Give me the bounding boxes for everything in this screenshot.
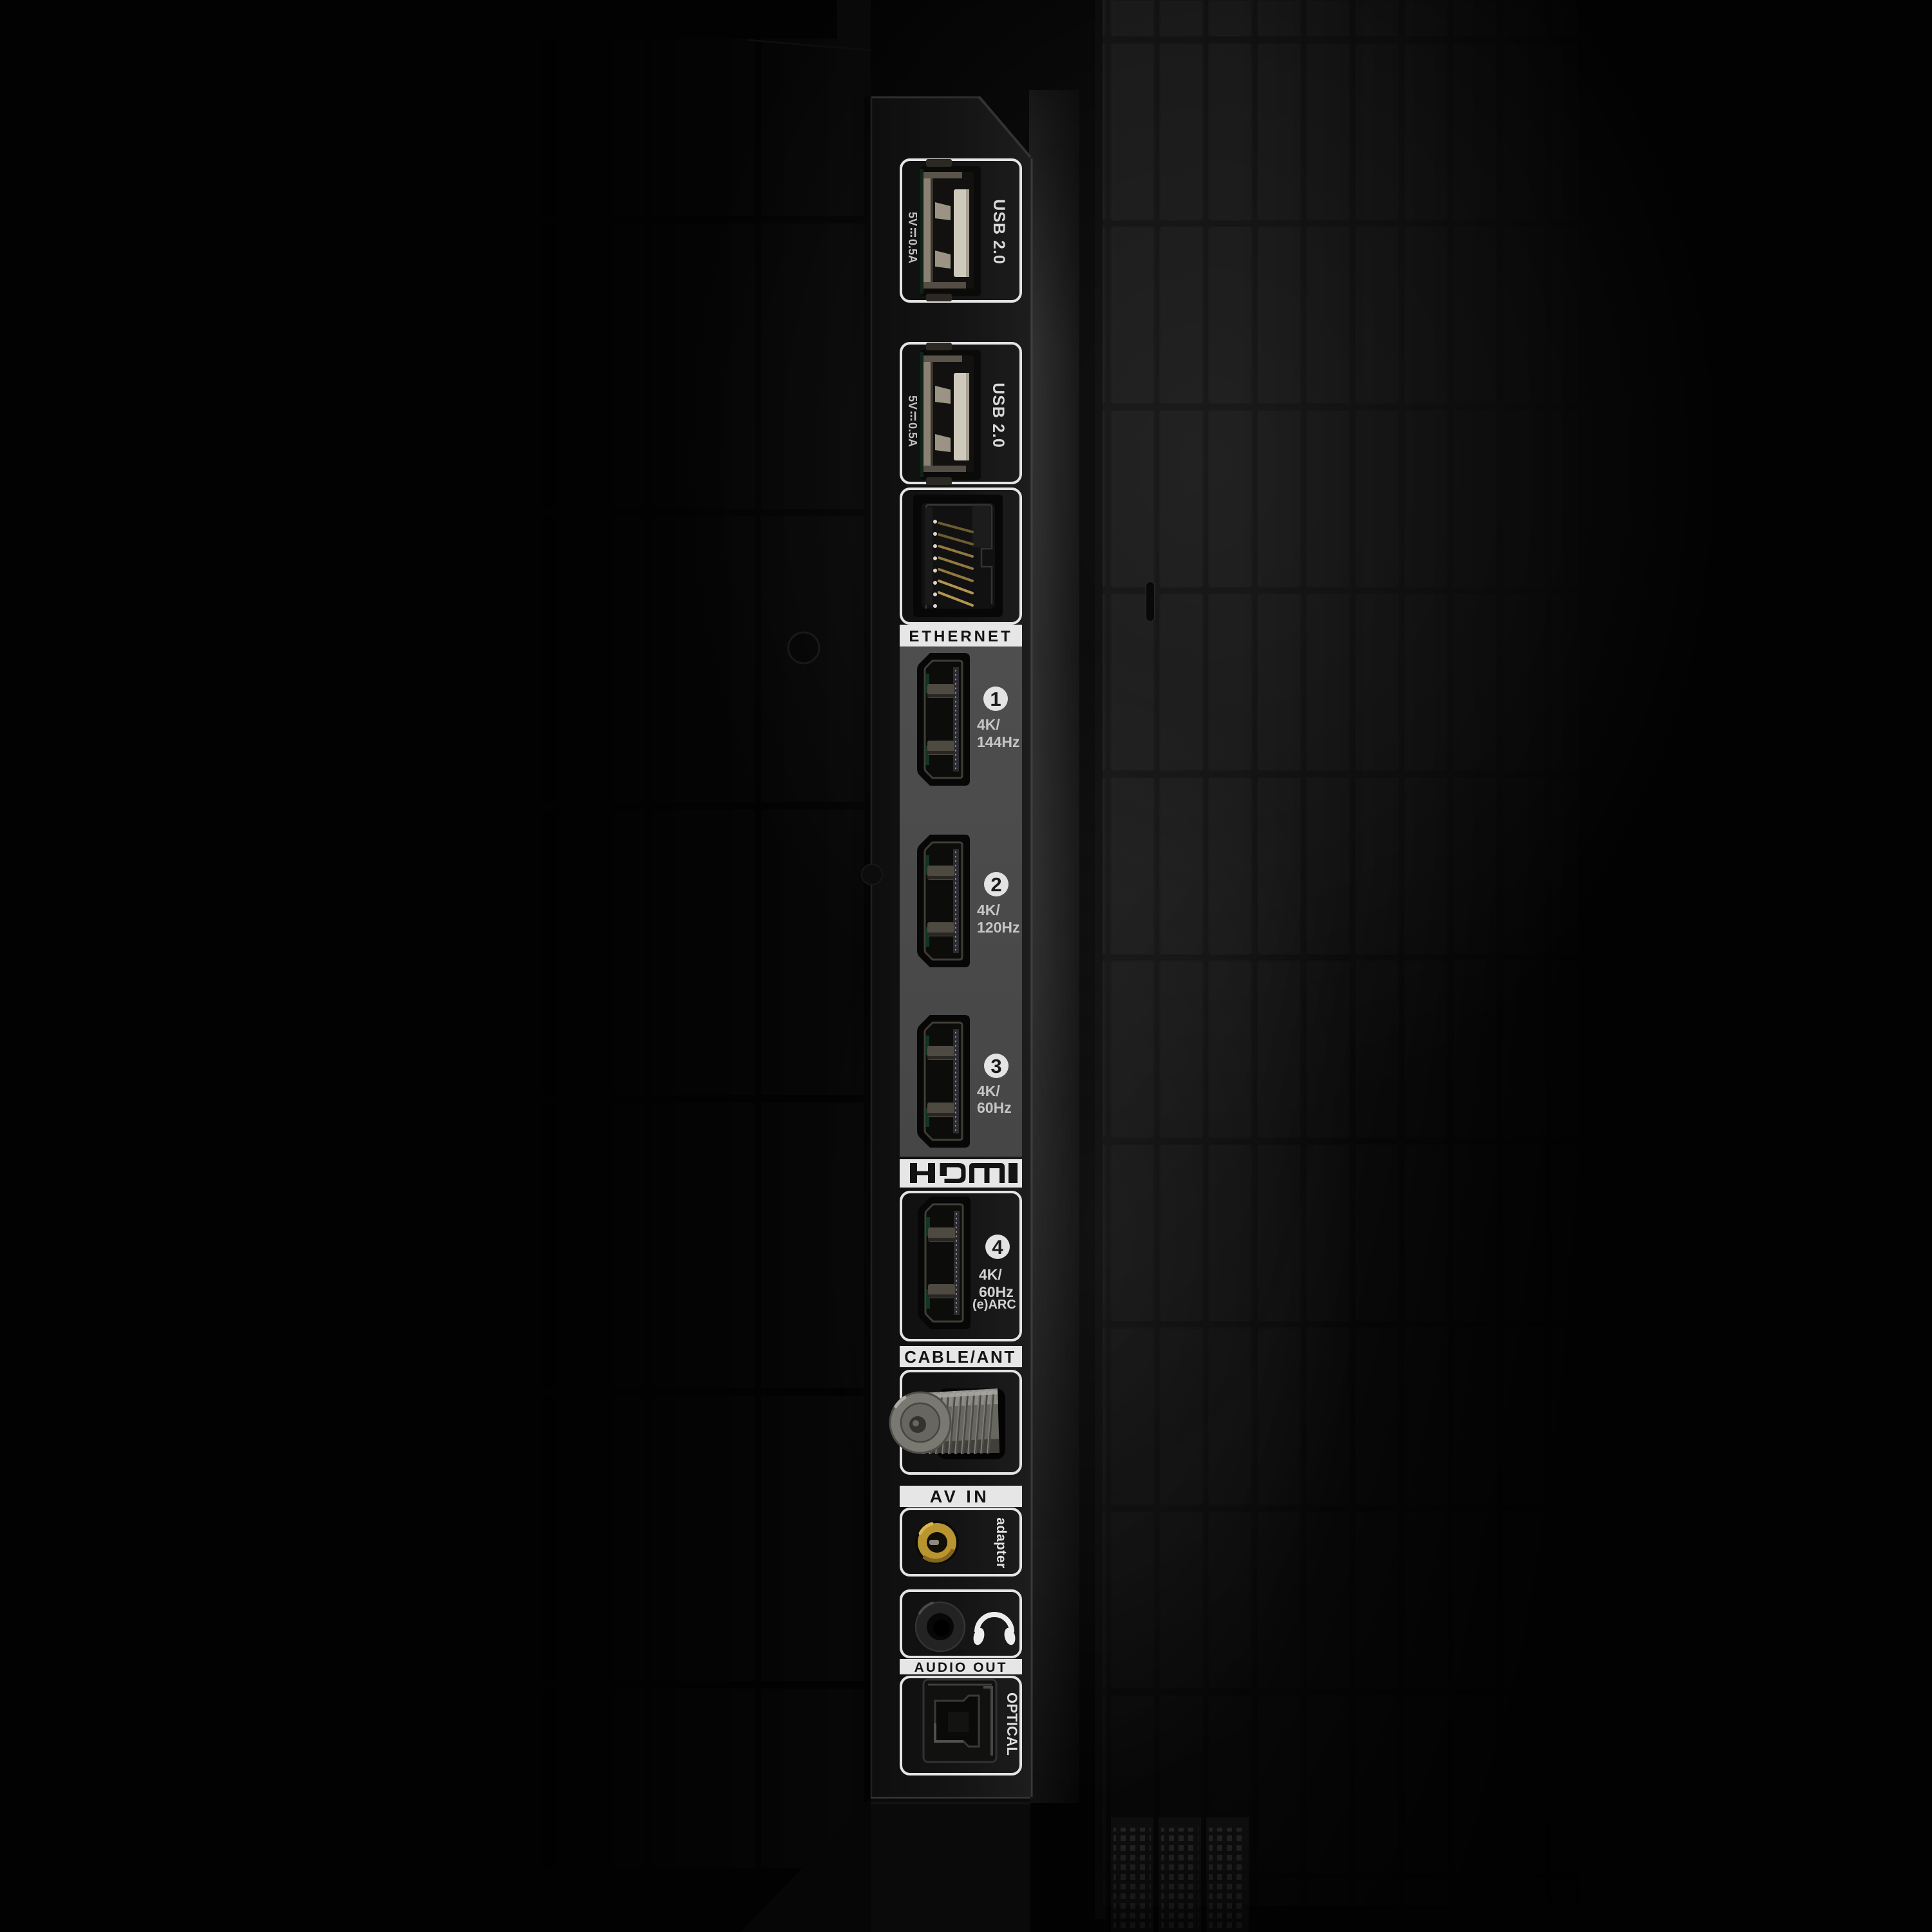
svg-text:60Hz: 60Hz <box>977 1099 1012 1116</box>
svg-text:120Hz: 120Hz <box>977 919 1019 936</box>
svg-text:4K/: 4K/ <box>977 902 1000 918</box>
svg-text:2: 2 <box>990 873 1001 896</box>
svg-text:144Hz: 144Hz <box>977 734 1019 750</box>
svg-text:4K/: 4K/ <box>977 1083 1000 1099</box>
svg-text:4: 4 <box>992 1236 1003 1258</box>
svg-text:ETHERNET: ETHERNET <box>909 628 1012 645</box>
svg-text:(e)ARC: (e)ARC <box>972 1298 1016 1312</box>
svg-text:USB 2.0: USB 2.0 <box>989 383 1007 448</box>
svg-text:OPTICAL: OPTICAL <box>1004 1692 1020 1756</box>
svg-text:AUDIO OUT: AUDIO OUT <box>914 1660 1008 1675</box>
svg-text:5V: 5V <box>906 395 919 410</box>
svg-text:USB 2.0: USB 2.0 <box>990 199 1008 264</box>
svg-text:4K/: 4K/ <box>979 1266 1002 1283</box>
svg-text:4K/: 4K/ <box>977 716 1000 733</box>
svg-text:adapter: adapter <box>994 1517 1009 1568</box>
svg-text:0.5A: 0.5A <box>906 422 919 447</box>
svg-text:1: 1 <box>990 688 1001 710</box>
svg-text:0.5A: 0.5A <box>906 239 919 263</box>
svg-text:AV IN: AV IN <box>930 1487 990 1506</box>
svg-text:5V: 5V <box>906 212 919 226</box>
svg-text:3: 3 <box>990 1055 1001 1077</box>
svg-text:CABLE/ANT: CABLE/ANT <box>904 1347 1016 1367</box>
